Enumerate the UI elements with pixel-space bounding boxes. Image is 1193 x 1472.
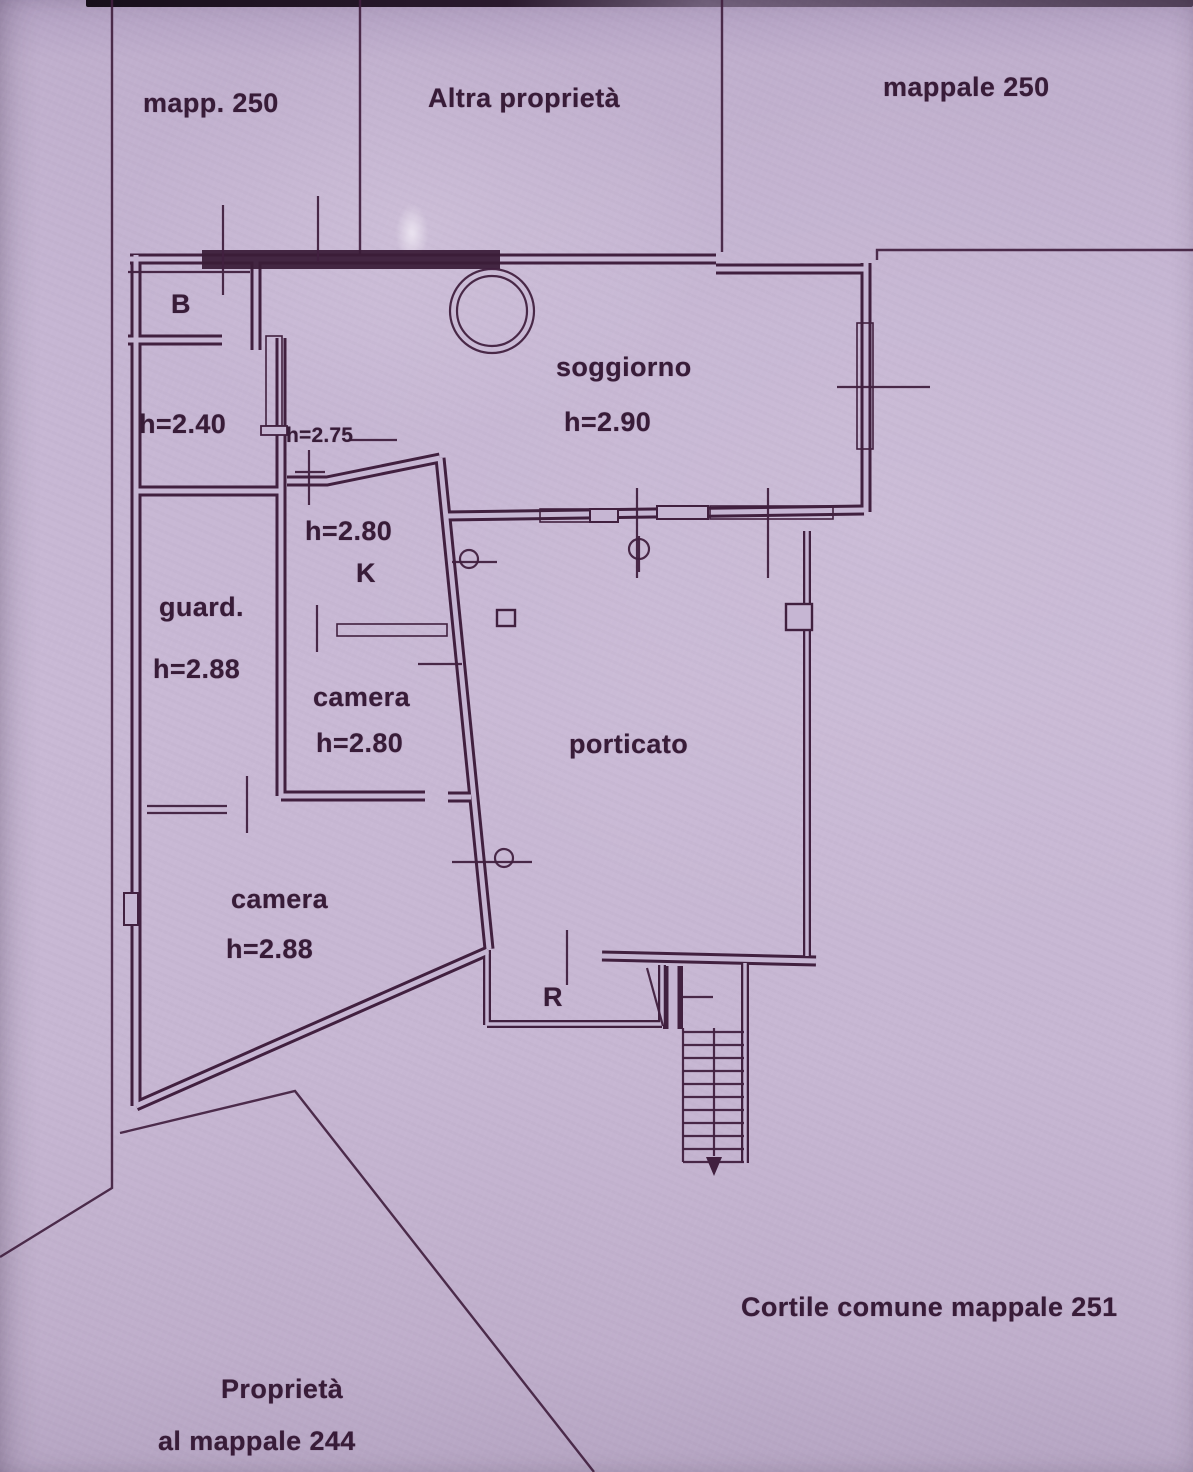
room-height-closet: h=2.88 <box>153 654 240 685</box>
stove-circle <box>450 269 534 353</box>
stairs <box>683 1028 744 1176</box>
room-height-kitchen: h=2.80 <box>305 516 392 547</box>
room-height-living: h=2.90 <box>564 407 651 438</box>
party-wall-band <box>202 250 500 269</box>
room-label-bath: B <box>171 289 191 320</box>
room-label-bedroom1: camera <box>313 682 410 713</box>
stairs-arrow-icon <box>706 1157 722 1176</box>
parcel-label-bottom-left-2: al mappale 244 <box>158 1426 356 1457</box>
parcel-label-top-left: mapp. 250 <box>143 88 279 119</box>
door-symbol <box>495 849 513 867</box>
room-label-closet: guard. <box>159 592 244 623</box>
room-label-porch: porticato <box>569 729 688 760</box>
room-height-hallway: h=2.75 <box>286 424 353 448</box>
room-label-living: soggiorno <box>556 352 692 383</box>
parcel-label-top-right: mappale 250 <box>883 72 1050 103</box>
walls <box>128 255 866 1163</box>
parcel-label-bottom-left-1: Proprietà <box>221 1374 343 1405</box>
room-label-bedroom2: camera <box>231 884 328 915</box>
floor-plan-page: mapp. 250 Altra proprietà mappale 250 B … <box>0 0 1193 1472</box>
room-height-bedroom2: h=2.88 <box>226 934 313 965</box>
room-label-entry: R <box>543 982 563 1013</box>
door-symbol <box>460 550 478 568</box>
room-label-kitchen: K <box>356 558 376 589</box>
room-height-bedroom1: h=2.80 <box>316 728 403 759</box>
parcel-label-courtyard: Cortile comune mappale 251 <box>741 1292 1118 1323</box>
parcel-label-top-center: Altra proprietà <box>428 83 620 114</box>
room-height-bath: h=2.40 <box>139 409 226 440</box>
